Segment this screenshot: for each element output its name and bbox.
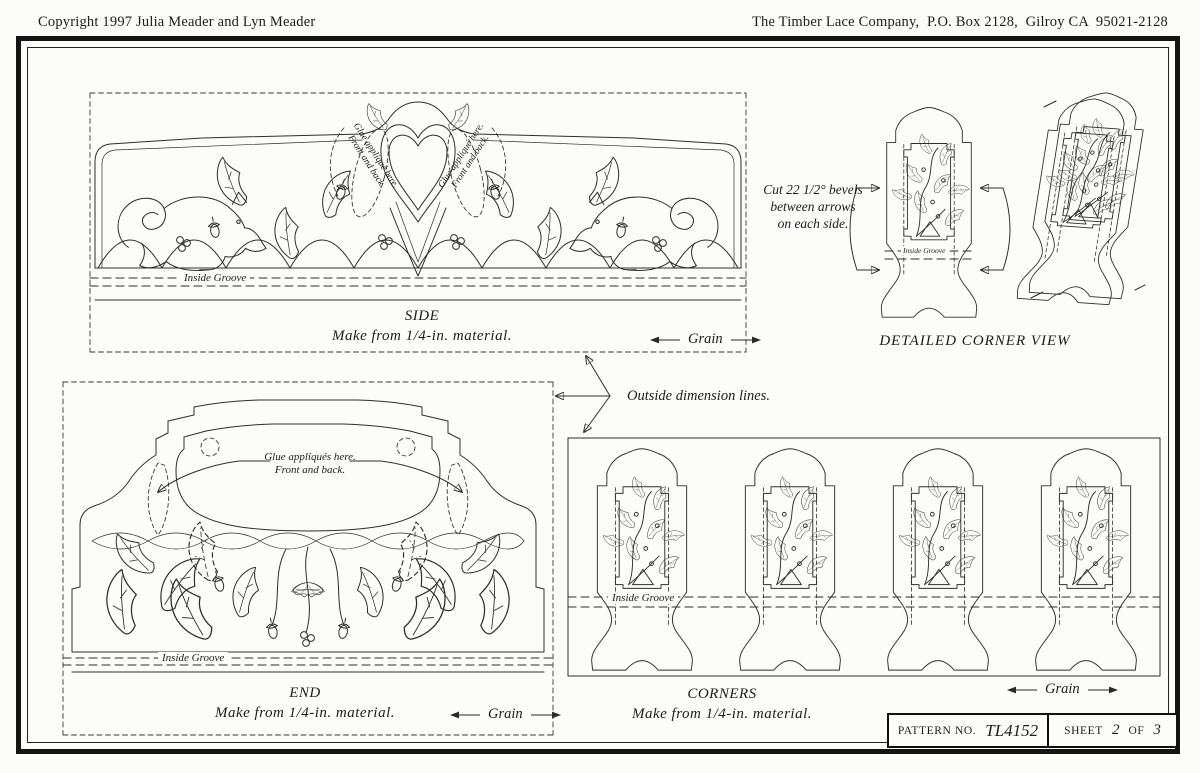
end-grain-indicator: Grain <box>448 706 563 723</box>
grain-label: Grain <box>1045 681 1080 698</box>
side-inside-groove-label: Inside Groove <box>180 272 250 284</box>
pattern-sheet-page: Copyright 1997 Julia Meader and Lyn Mead… <box>0 0 1200 773</box>
grain-label: Grain <box>488 706 523 723</box>
grain-arrow-left-icon <box>648 335 682 345</box>
end-applique-note: Glue appliqués here.Front and back. <box>240 451 380 477</box>
corners-material-note: Make from 1/4-in. material. <box>567 706 877 723</box>
grain-label: Grain <box>688 331 723 348</box>
corner-perspective-view <box>1016 90 1153 305</box>
sheet-number-cell: SHEET 2 OF 3 <box>1049 715 1176 746</box>
grain-arrow-left-icon <box>448 710 482 720</box>
corners-title: CORNERS <box>622 686 822 703</box>
corner-piece-4 <box>1036 449 1137 670</box>
pattern-number-cell: PATTERN NO. TL4152 <box>889 715 1049 746</box>
side-grain-indicator: Grain <box>648 331 763 348</box>
pattern-no-label: PATTERN NO. <box>898 725 976 737</box>
corners-pattern-drawing <box>566 434 1163 679</box>
grain-arrow-right-icon <box>1086 685 1120 695</box>
corner-piece-3 <box>888 449 989 670</box>
corner-piece-1 <box>592 449 693 670</box>
side-material-note: Make from 1/4-in. material. <box>272 328 572 345</box>
side-title: SIDE <box>322 308 522 325</box>
copyright-text: Copyright 1997 Julia Meader and Lyn Mead… <box>38 14 315 31</box>
end-inside-groove-label: Inside Groove <box>158 652 228 664</box>
corners-grain-indicator: Grain <box>1005 681 1120 698</box>
corner-inside-groove-label: Inside Groove <box>901 246 947 255</box>
grain-arrow-right-icon <box>729 335 763 345</box>
end-title: END <box>205 685 405 702</box>
dimension-annotation-text: Outside dimension lines. <box>627 388 770 405</box>
company-address-text: The Timber Lace Company, P.O. Box 2128, … <box>752 14 1168 31</box>
pattern-number-value: TL4152 <box>985 721 1038 741</box>
corner-piece-2 <box>740 449 841 670</box>
sheet-total-value: 3 <box>1153 722 1161 739</box>
corners-inside-groove-label: Inside Groove <box>608 592 678 604</box>
grain-arrow-left-icon <box>1005 685 1039 695</box>
sheet-of-label: OF <box>1128 725 1144 737</box>
bevel-instruction-note: Cut 22 1/2° bevels between arrows on eac… <box>752 181 874 232</box>
pattern-number-box: PATTERN NO. TL4152 SHEET 2 OF 3 <box>887 713 1178 748</box>
corner-view-title: DETAILED CORNER VIEW <box>875 333 1075 350</box>
corner-front-view <box>881 108 976 318</box>
sheet-label: SHEET <box>1064 725 1103 737</box>
corner-detail-drawing <box>845 85 1165 335</box>
sheet-current-value: 2 <box>1112 722 1120 739</box>
end-material-note: Make from 1/4-in. material. <box>150 705 460 722</box>
grain-arrow-right-icon <box>529 710 563 720</box>
